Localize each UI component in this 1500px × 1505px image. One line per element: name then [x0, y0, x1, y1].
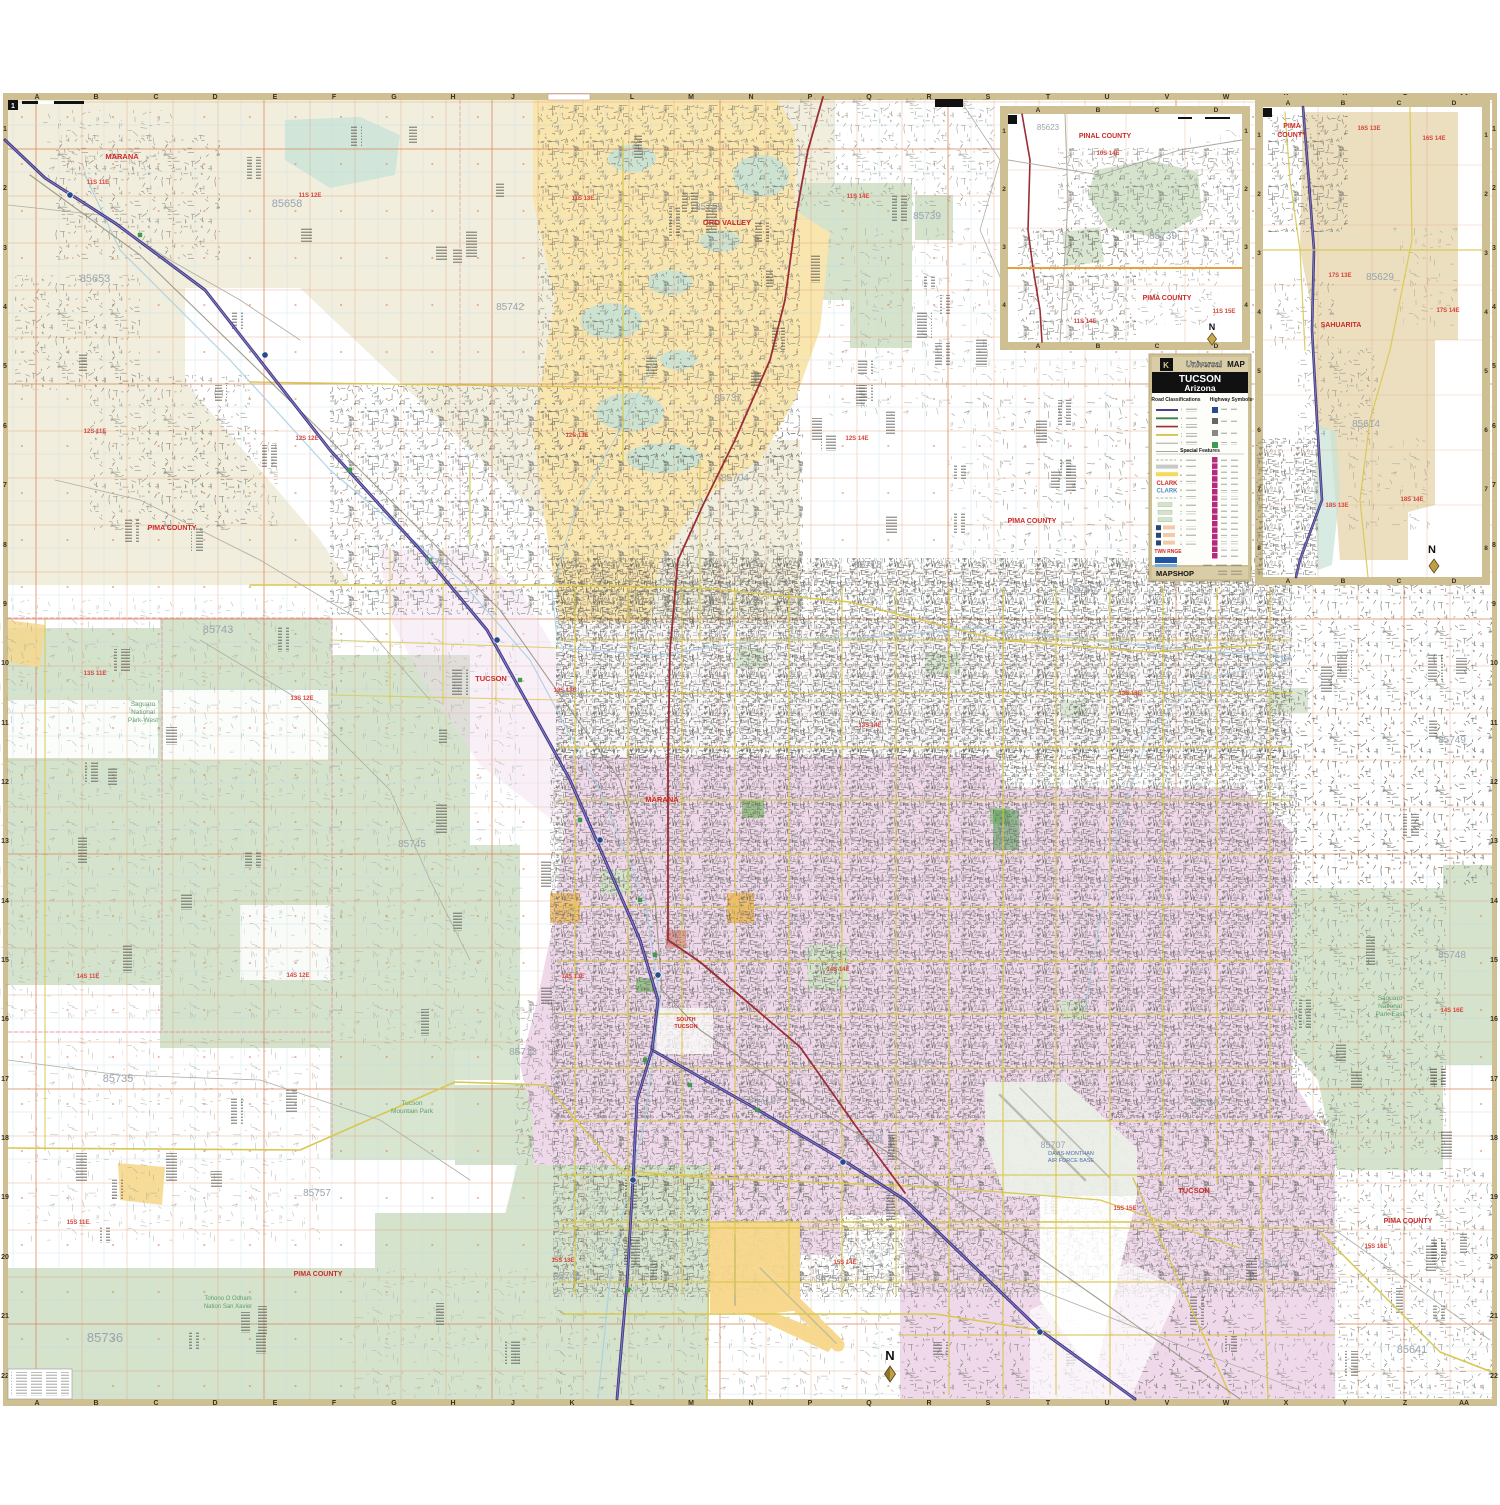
svg-text:H: H — [450, 94, 455, 101]
svg-text:10S 14E: 10S 14E — [1096, 151, 1119, 157]
svg-text:85653: 85653 — [80, 273, 111, 285]
svg-text:8: 8 — [3, 542, 7, 549]
svg-text:Road Classifications: Road Classifications — [1151, 397, 1200, 403]
svg-text:3: 3 — [1484, 250, 1488, 257]
svg-text:CLARK: CLARK — [1157, 481, 1179, 487]
svg-text:P: P — [808, 94, 813, 101]
svg-text:1: 1 — [11, 103, 15, 110]
svg-text:V: V — [1165, 1400, 1170, 1407]
svg-text:13S 11E: 13S 11E — [84, 671, 107, 677]
svg-text:U: U — [1104, 94, 1109, 101]
svg-text:7: 7 — [1257, 486, 1261, 493]
svg-text:4: 4 — [1002, 302, 1006, 309]
svg-text:5: 5 — [1484, 368, 1488, 375]
svg-text:21: 21 — [1490, 1313, 1498, 1320]
svg-text:1: 1 — [3, 126, 7, 133]
svg-text:AIR FORCE BASE: AIR FORCE BASE — [1048, 1158, 1094, 1164]
svg-text:7: 7 — [3, 482, 7, 489]
svg-text:18S 14E: 18S 14E — [1400, 497, 1423, 503]
svg-text:19: 19 — [1490, 1194, 1498, 1201]
svg-text:Q: Q — [866, 94, 872, 101]
svg-text:85710: 85710 — [907, 1057, 932, 1067]
svg-text:B: B — [1096, 343, 1101, 350]
svg-text:TUCSON: TUCSON — [674, 1024, 697, 1030]
svg-text:N: N — [1428, 544, 1436, 556]
svg-text:R: R — [926, 94, 931, 101]
svg-text:85757: 85757 — [303, 1188, 331, 1199]
svg-text:16: 16 — [1, 1016, 9, 1023]
svg-text:C: C — [153, 1400, 158, 1407]
svg-text:ORO VALLEY: ORO VALLEY — [703, 218, 751, 227]
svg-text:B: B — [1341, 578, 1346, 585]
svg-text:13S 12E: 13S 12E — [290, 696, 313, 702]
svg-text:20: 20 — [1, 1254, 9, 1261]
svg-text:N: N — [885, 1348, 894, 1363]
svg-text:3: 3 — [1492, 245, 1496, 252]
svg-text:13: 13 — [1490, 838, 1498, 845]
svg-text:21: 21 — [1, 1313, 9, 1320]
svg-text:85739: 85739 — [1149, 231, 1177, 242]
svg-text:AA: AA — [1459, 1400, 1469, 1407]
svg-text:17S 13E: 17S 13E — [1328, 273, 1351, 279]
svg-text:C: C — [1155, 107, 1160, 114]
svg-text:85739: 85739 — [913, 211, 941, 222]
svg-text:PIMA COUNTY: PIMA COUNTY — [1143, 295, 1192, 302]
svg-text:National: National — [1378, 1003, 1402, 1010]
svg-text:PIMA: PIMA — [1283, 123, 1301, 130]
svg-text:85658: 85658 — [272, 198, 303, 210]
svg-text:J: J — [511, 94, 515, 101]
svg-text:A: A — [1286, 578, 1291, 585]
svg-text:85623: 85623 — [1037, 123, 1060, 132]
svg-text:85629: 85629 — [1366, 272, 1394, 283]
svg-text:Nation San Xavier: Nation San Xavier — [204, 1304, 252, 1310]
svg-text:2: 2 — [1257, 191, 1261, 198]
svg-text:X: X — [1284, 1400, 1289, 1407]
svg-text:4: 4 — [1484, 309, 1488, 316]
svg-text:A: A — [1036, 343, 1041, 350]
svg-text:12S 12E: 12S 12E — [295, 436, 318, 442]
svg-text:3: 3 — [3, 245, 7, 252]
svg-text:T: T — [1046, 94, 1051, 101]
svg-text:W: W — [1223, 94, 1230, 101]
svg-text:85713: 85713 — [509, 1047, 537, 1058]
svg-text:3: 3 — [1244, 244, 1248, 251]
svg-text:16: 16 — [1490, 1016, 1498, 1023]
svg-text:6: 6 — [3, 423, 7, 430]
svg-text:85746: 85746 — [553, 1271, 581, 1282]
svg-text:N: N — [748, 94, 753, 101]
svg-text:G: G — [391, 1400, 397, 1407]
svg-text:15S 15E: 15S 15E — [1113, 1206, 1136, 1212]
svg-text:4: 4 — [1257, 309, 1261, 316]
svg-text:DAVIS-MONTHAN: DAVIS-MONTHAN — [1048, 1151, 1094, 1157]
svg-text:3: 3 — [1002, 244, 1006, 251]
svg-text:85741: 85741 — [424, 557, 449, 567]
svg-text:TUCSON: TUCSON — [1178, 1186, 1210, 1195]
svg-text:85706: 85706 — [855, 1134, 883, 1145]
svg-text:D: D — [212, 94, 217, 101]
svg-text:14: 14 — [1490, 898, 1498, 905]
svg-text:14S 12E: 14S 12E — [286, 973, 309, 979]
svg-text:PIMA COUNTY: PIMA COUNTY — [1384, 1218, 1433, 1225]
svg-text:16S 14E: 16S 14E — [1422, 136, 1445, 142]
svg-text:19: 19 — [1, 1194, 9, 1201]
svg-text:13S 15E: 13S 15E — [1118, 691, 1141, 697]
svg-text:D: D — [1214, 343, 1219, 350]
svg-text:14S 14E: 14S 14E — [826, 967, 849, 973]
svg-text:4: 4 — [1244, 302, 1248, 309]
svg-text:T: T — [1046, 1400, 1051, 1407]
svg-text:TWN RNGE: TWN RNGE — [1154, 549, 1182, 555]
svg-text:Park-West: Park-West — [128, 717, 158, 724]
svg-text:G: G — [391, 94, 397, 101]
svg-text:Y: Y — [1343, 1400, 1348, 1407]
svg-text:Z: Z — [1403, 1400, 1408, 1407]
svg-text:Universal: Universal — [1186, 360, 1222, 369]
svg-text:M: M — [688, 1400, 694, 1407]
svg-text:COUNTY: COUNTY — [1277, 132, 1307, 139]
svg-text:SOUTH: SOUTH — [676, 1017, 695, 1023]
svg-text:National: National — [131, 709, 155, 716]
svg-text:S: S — [986, 94, 991, 101]
svg-text:MAPSHOP: MAPSHOP — [1156, 569, 1194, 578]
svg-text:Mountain Park: Mountain Park — [391, 1108, 434, 1115]
svg-text:8: 8 — [1492, 542, 1496, 549]
svg-text:2: 2 — [1002, 186, 1006, 193]
svg-text:11S 11E: 11S 11E — [87, 180, 109, 186]
svg-text:PIMA COUNTY: PIMA COUNTY — [148, 525, 197, 532]
svg-text:15S 13E: 15S 13E — [551, 1258, 574, 1264]
svg-text:A: A — [1036, 107, 1041, 114]
svg-text:85730: 85730 — [1191, 1098, 1219, 1109]
svg-text:MARANA: MARANA — [105, 152, 139, 161]
svg-text:15S 11E: 15S 11E — [67, 1220, 90, 1226]
svg-text:17: 17 — [1, 1076, 9, 1083]
svg-text:SAHUARITA: SAHUARITA — [1321, 322, 1362, 329]
svg-text:Tohono O Odham: Tohono O Odham — [204, 1296, 251, 1302]
svg-text:12S 14E: 12S 14E — [845, 436, 868, 442]
svg-text:7: 7 — [1492, 482, 1496, 489]
svg-text:K: K — [1163, 361, 1169, 370]
svg-text:2: 2 — [3, 185, 7, 192]
svg-text:12: 12 — [1490, 779, 1498, 786]
svg-text:E: E — [273, 94, 278, 101]
svg-text:P: P — [808, 1400, 813, 1407]
svg-text:16S 13E: 16S 13E — [1357, 126, 1380, 132]
svg-text:D: D — [1452, 578, 1457, 585]
svg-text:6: 6 — [1257, 427, 1261, 434]
svg-text:PINAL COUNTY: PINAL COUNTY — [1079, 133, 1132, 140]
svg-text:15: 15 — [1490, 957, 1498, 964]
svg-text:85705: 85705 — [559, 689, 584, 699]
svg-text:8: 8 — [1257, 545, 1261, 552]
svg-text:H: H — [450, 1400, 455, 1407]
svg-text:MAP: MAP — [1227, 360, 1245, 369]
svg-text:3: 3 — [1257, 250, 1261, 257]
svg-text:4: 4 — [1492, 304, 1496, 311]
svg-text:17S 14E: 17S 14E — [1436, 308, 1459, 314]
svg-text:Special Features: Special Features — [1180, 448, 1220, 454]
svg-text:1: 1 — [1002, 128, 1006, 135]
svg-text:85750: 85750 — [1068, 585, 1096, 596]
svg-text:M: M — [688, 94, 694, 101]
svg-text:85704: 85704 — [721, 473, 749, 484]
svg-text:L: L — [630, 1400, 635, 1407]
svg-text:W: W — [1223, 1400, 1230, 1407]
svg-text:85756: 85756 — [815, 1274, 843, 1285]
svg-text:B: B — [1341, 100, 1346, 107]
svg-text:Highway Symbols: Highway Symbols — [1210, 397, 1253, 403]
svg-text:D: D — [1452, 100, 1457, 107]
svg-text:13: 13 — [1, 838, 9, 845]
svg-text:11: 11 — [1490, 720, 1498, 727]
svg-text:85745: 85745 — [398, 839, 426, 850]
svg-text:22: 22 — [1490, 1373, 1498, 1380]
svg-text:B: B — [93, 94, 98, 101]
svg-text:F: F — [332, 94, 337, 101]
svg-text:85735: 85735 — [103, 1073, 134, 1085]
svg-text:F: F — [332, 1400, 337, 1407]
svg-text:85707: 85707 — [1040, 1140, 1065, 1150]
svg-text:TUCSON: TUCSON — [475, 674, 507, 683]
svg-text:20: 20 — [1490, 1254, 1498, 1261]
svg-text:11: 11 — [1, 720, 9, 727]
svg-text:1: 1 — [1484, 132, 1488, 139]
svg-text:K: K — [569, 1400, 574, 1407]
svg-text:12: 12 — [1, 779, 9, 786]
svg-text:D: D — [212, 1400, 217, 1407]
svg-text:10: 10 — [1490, 660, 1498, 667]
svg-text:R: R — [926, 1400, 931, 1407]
svg-text:18S 13E: 18S 13E — [1325, 503, 1348, 509]
svg-text:Park-East: Park-East — [1376, 1011, 1405, 1018]
svg-text:85714: 85714 — [748, 1095, 776, 1106]
svg-text:C: C — [1397, 578, 1402, 585]
svg-text:MARANA: MARANA — [645, 795, 679, 804]
svg-text:85614: 85614 — [1352, 419, 1380, 430]
svg-text:11S 14E: 11S 14E — [1074, 319, 1097, 325]
svg-text:B: B — [93, 1400, 98, 1407]
svg-text:85749: 85749 — [1438, 735, 1466, 746]
svg-text:4: 4 — [3, 304, 7, 311]
svg-text:14S 11E: 14S 11E — [77, 974, 100, 980]
svg-text:85641: 85641 — [1397, 1344, 1428, 1356]
svg-text:Q: Q — [866, 1400, 872, 1407]
svg-text:2: 2 — [1244, 186, 1248, 193]
svg-text:85748: 85748 — [1438, 950, 1466, 961]
svg-text:Saguaro: Saguaro — [1378, 995, 1403, 1002]
svg-text:10: 10 — [1, 660, 9, 667]
svg-text:85755: 85755 — [695, 202, 723, 213]
svg-text:6: 6 — [1484, 427, 1488, 434]
svg-text:85718: 85718 — [854, 560, 882, 571]
svg-text:D: D — [1214, 107, 1219, 114]
svg-text:12S 11E: 12S 11E — [84, 429, 107, 435]
svg-text:Tucson: Tucson — [401, 1100, 422, 1107]
svg-text:C: C — [153, 94, 158, 101]
svg-text:14S 16E: 14S 16E — [1440, 1008, 1463, 1014]
svg-text:6: 6 — [1492, 423, 1496, 430]
svg-text:2: 2 — [1492, 185, 1496, 192]
svg-text:PIMA COUNTY: PIMA COUNTY — [294, 1271, 343, 1278]
svg-text:L: L — [630, 94, 635, 101]
svg-text:14S 13E: 14S 13E — [561, 974, 584, 980]
svg-text:18: 18 — [1, 1135, 9, 1142]
svg-text:C: C — [1397, 100, 1402, 107]
svg-text:9: 9 — [3, 601, 7, 608]
svg-text:N: N — [1209, 322, 1216, 332]
svg-text:CLARK: CLARK — [1157, 488, 1179, 494]
svg-text:15S 16E: 15S 16E — [1364, 1244, 1387, 1250]
svg-text:11S 15E: 11S 15E — [1213, 309, 1236, 315]
svg-text:7: 7 — [1484, 486, 1488, 493]
svg-text:9: 9 — [1492, 601, 1496, 608]
svg-text:A: A — [34, 94, 39, 101]
svg-text:1: 1 — [1257, 132, 1261, 139]
svg-text:PIMA COUNTY: PIMA COUNTY — [1008, 518, 1057, 525]
svg-text:V: V — [1165, 94, 1170, 101]
svg-text:14: 14 — [1, 898, 9, 905]
svg-text:J: J — [511, 1400, 515, 1407]
svg-text:85743: 85743 — [203, 624, 234, 636]
svg-text:S: S — [986, 1400, 991, 1407]
svg-text:5: 5 — [1492, 363, 1496, 370]
svg-text:1: 1 — [1492, 126, 1496, 133]
svg-text:E: E — [273, 1400, 278, 1407]
svg-text:Saguaro: Saguaro — [131, 701, 156, 708]
svg-text:5: 5 — [1257, 368, 1261, 375]
svg-text:1: 1 — [1244, 128, 1248, 135]
svg-text:85742: 85742 — [496, 302, 524, 313]
svg-text:Arizona: Arizona — [1184, 383, 1215, 393]
svg-text:5: 5 — [3, 363, 7, 370]
svg-text:N: N — [748, 1400, 753, 1407]
svg-text:85736: 85736 — [87, 1330, 123, 1345]
svg-text:11S 13E: 11S 13E — [572, 196, 595, 202]
svg-text:A: A — [34, 1400, 39, 1407]
svg-text:85737: 85737 — [714, 393, 742, 404]
svg-text:12S 13E: 12S 13E — [565, 433, 588, 439]
svg-text:C: C — [1155, 343, 1160, 350]
svg-text:13S 14E: 13S 14E — [858, 723, 881, 729]
svg-text:B: B — [1096, 107, 1101, 114]
svg-text:15: 15 — [1, 957, 9, 964]
svg-text:85747: 85747 — [1259, 1259, 1290, 1271]
svg-text:15S 14E: 15S 14E — [833, 1260, 856, 1266]
svg-text:A: A — [1286, 100, 1291, 107]
svg-text:8: 8 — [1484, 545, 1488, 552]
svg-text:18: 18 — [1490, 1135, 1498, 1142]
svg-text:U: U — [1104, 1400, 1109, 1407]
svg-text:17: 17 — [1490, 1076, 1498, 1083]
svg-text:2: 2 — [1484, 191, 1488, 198]
svg-text:11S 14E: 11S 14E — [847, 194, 870, 200]
